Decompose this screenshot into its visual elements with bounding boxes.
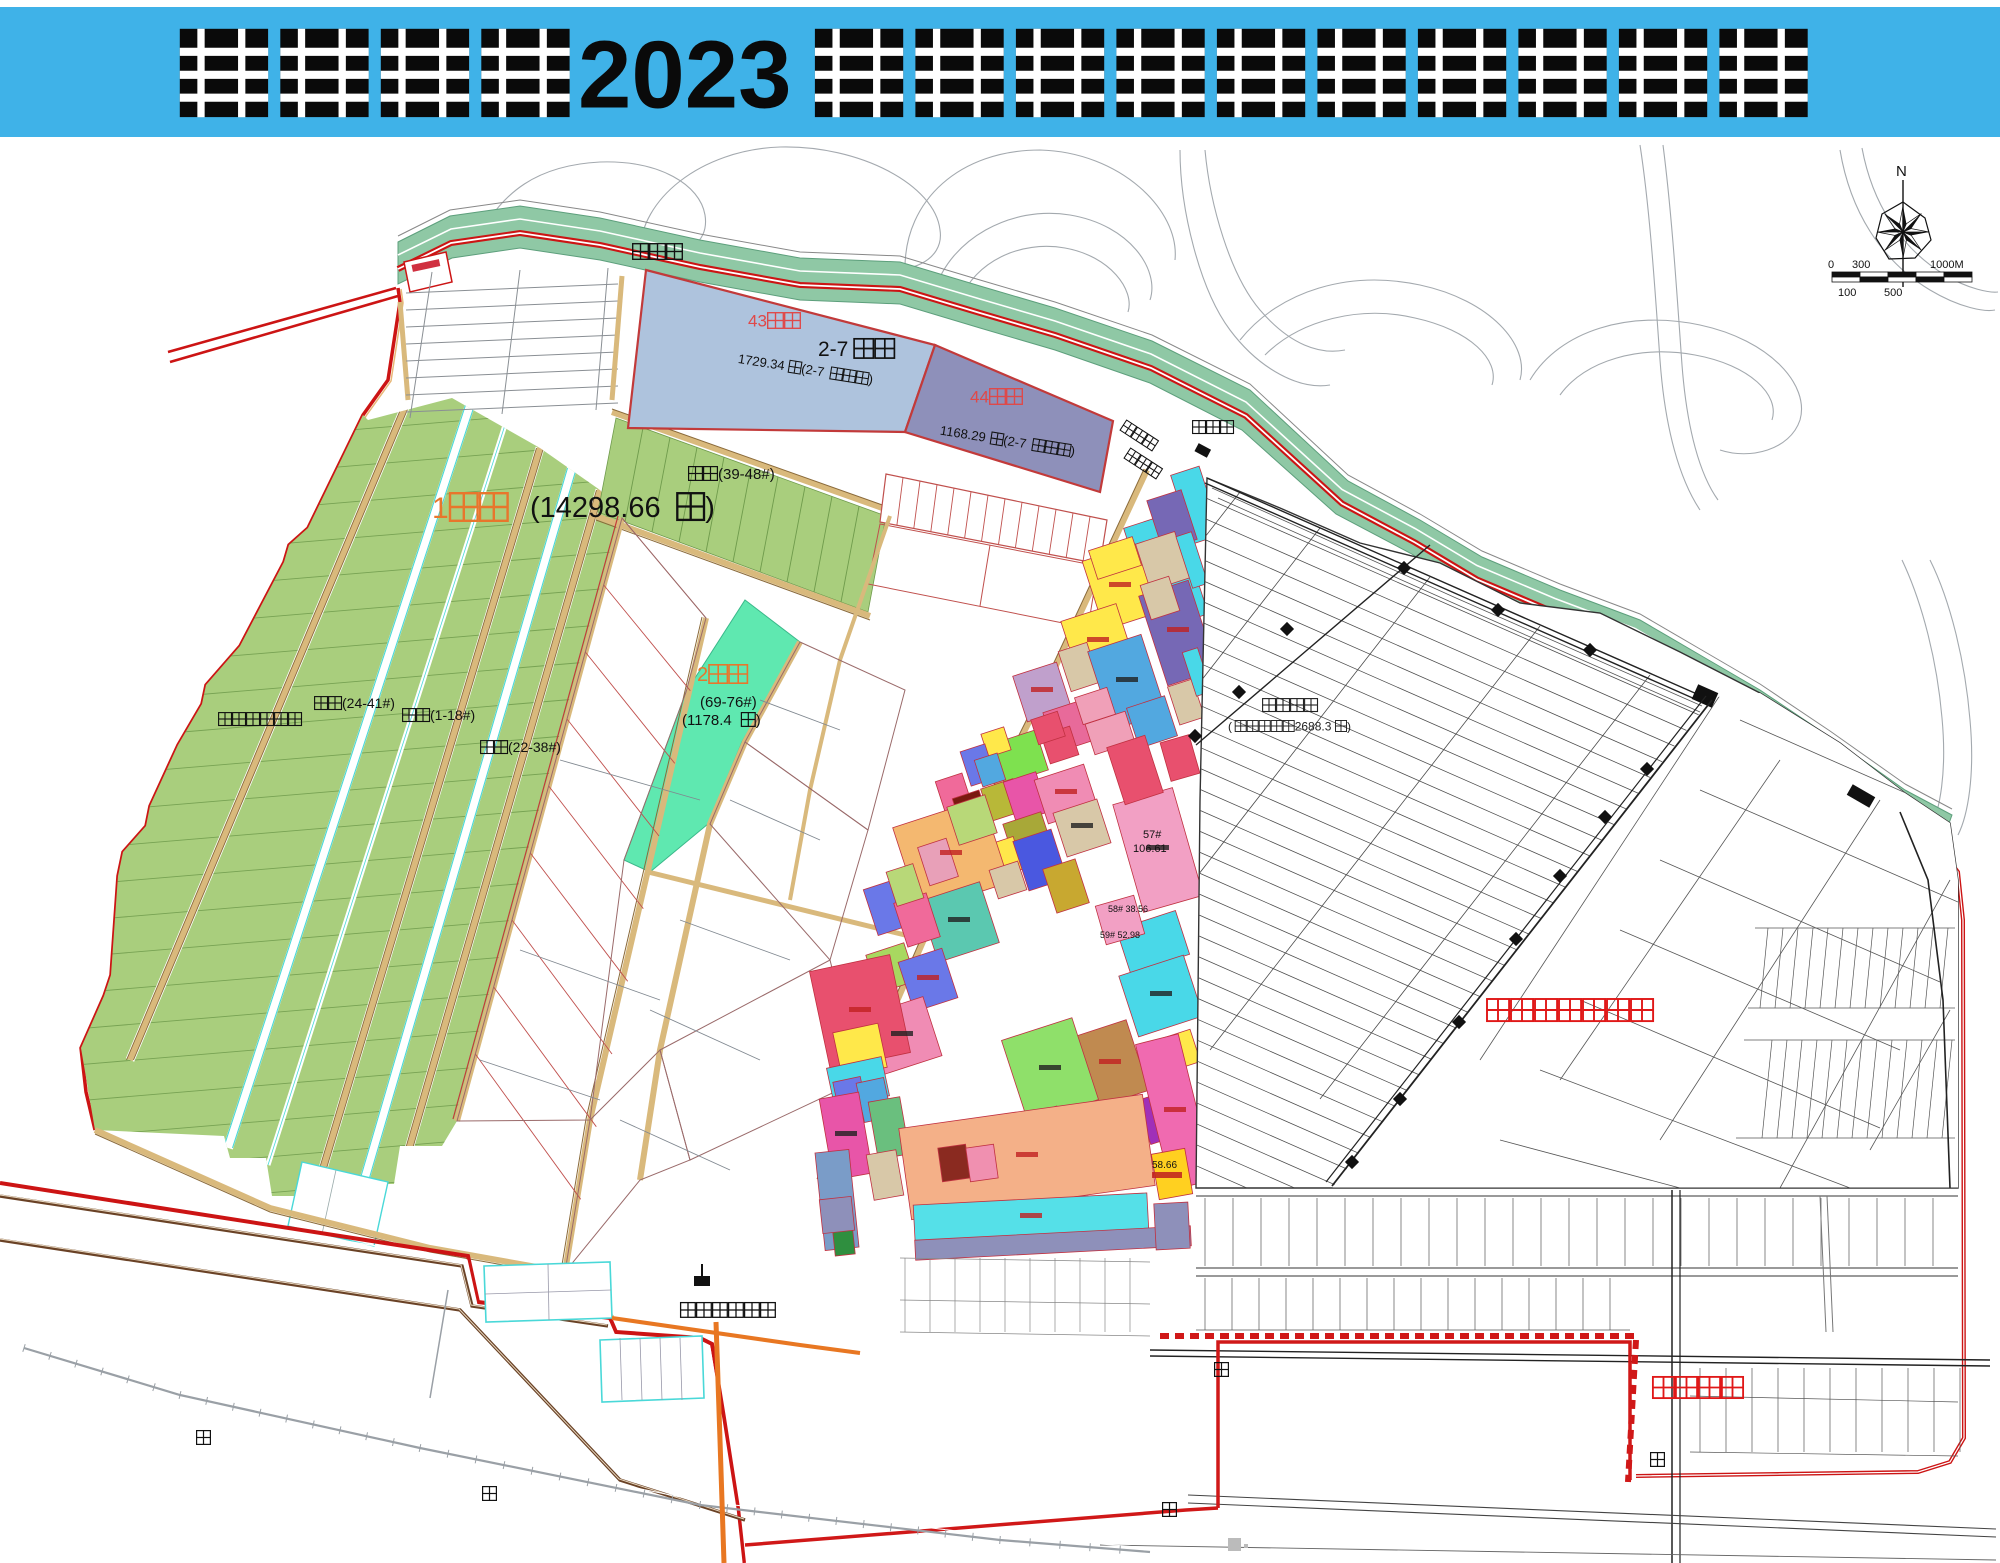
svg-text:(24-41#): (24-41#) bbox=[342, 695, 395, 711]
svg-text:2-7: 2-7 bbox=[818, 338, 848, 361]
svg-text:500: 500 bbox=[1884, 287, 1902, 299]
svg-text:(1-18#): (1-18#) bbox=[430, 707, 475, 723]
svg-text:(: ( bbox=[1228, 719, 1232, 733]
svg-text:59# 52.98: 59# 52.98 bbox=[1100, 930, 1140, 940]
svg-text:2: 2 bbox=[697, 664, 708, 686]
svg-text:(69-76#): (69-76#) bbox=[700, 694, 757, 711]
svg-text:(22-38#): (22-38#) bbox=[508, 739, 561, 755]
svg-text:106.61: 106.61 bbox=[1133, 843, 1167, 855]
svg-text:58# 38.56: 58# 38.56 bbox=[1108, 904, 1148, 914]
svg-text:58.66: 58.66 bbox=[1152, 1160, 1177, 1171]
svg-text:44: 44 bbox=[970, 388, 989, 407]
svg-text:): ) bbox=[756, 712, 761, 729]
svg-text:(14298.66: (14298.66 bbox=[530, 492, 661, 524]
svg-text:N: N bbox=[1896, 163, 1907, 180]
svg-text:(39-48#): (39-48#) bbox=[718, 466, 775, 483]
svg-text:2023: 2023 bbox=[578, 22, 792, 129]
svg-text:1: 1 bbox=[432, 492, 449, 525]
svg-text:100: 100 bbox=[1838, 287, 1856, 299]
svg-text:57#: 57# bbox=[1143, 829, 1162, 841]
svg-text:300: 300 bbox=[1852, 259, 1870, 271]
svg-text:): ) bbox=[705, 492, 715, 524]
svg-text:(1178.4: (1178.4 bbox=[682, 712, 732, 729]
svg-text:): ) bbox=[1347, 719, 1351, 733]
svg-text:0: 0 bbox=[1828, 259, 1834, 271]
svg-text:2688.3: 2688.3 bbox=[1295, 719, 1332, 733]
svg-text:43: 43 bbox=[748, 312, 767, 331]
svg-text:1000M: 1000M bbox=[1930, 259, 1964, 271]
